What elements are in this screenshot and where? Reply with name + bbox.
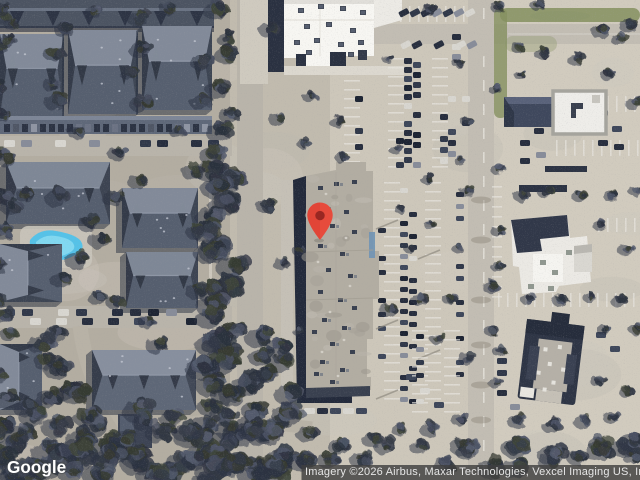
svg-text:Imagery ©2026 Airbus, Maxar Te: Imagery ©2026 Airbus, Maxar Technologies… — [305, 466, 640, 478]
svg-text:Google: Google — [7, 457, 66, 477]
